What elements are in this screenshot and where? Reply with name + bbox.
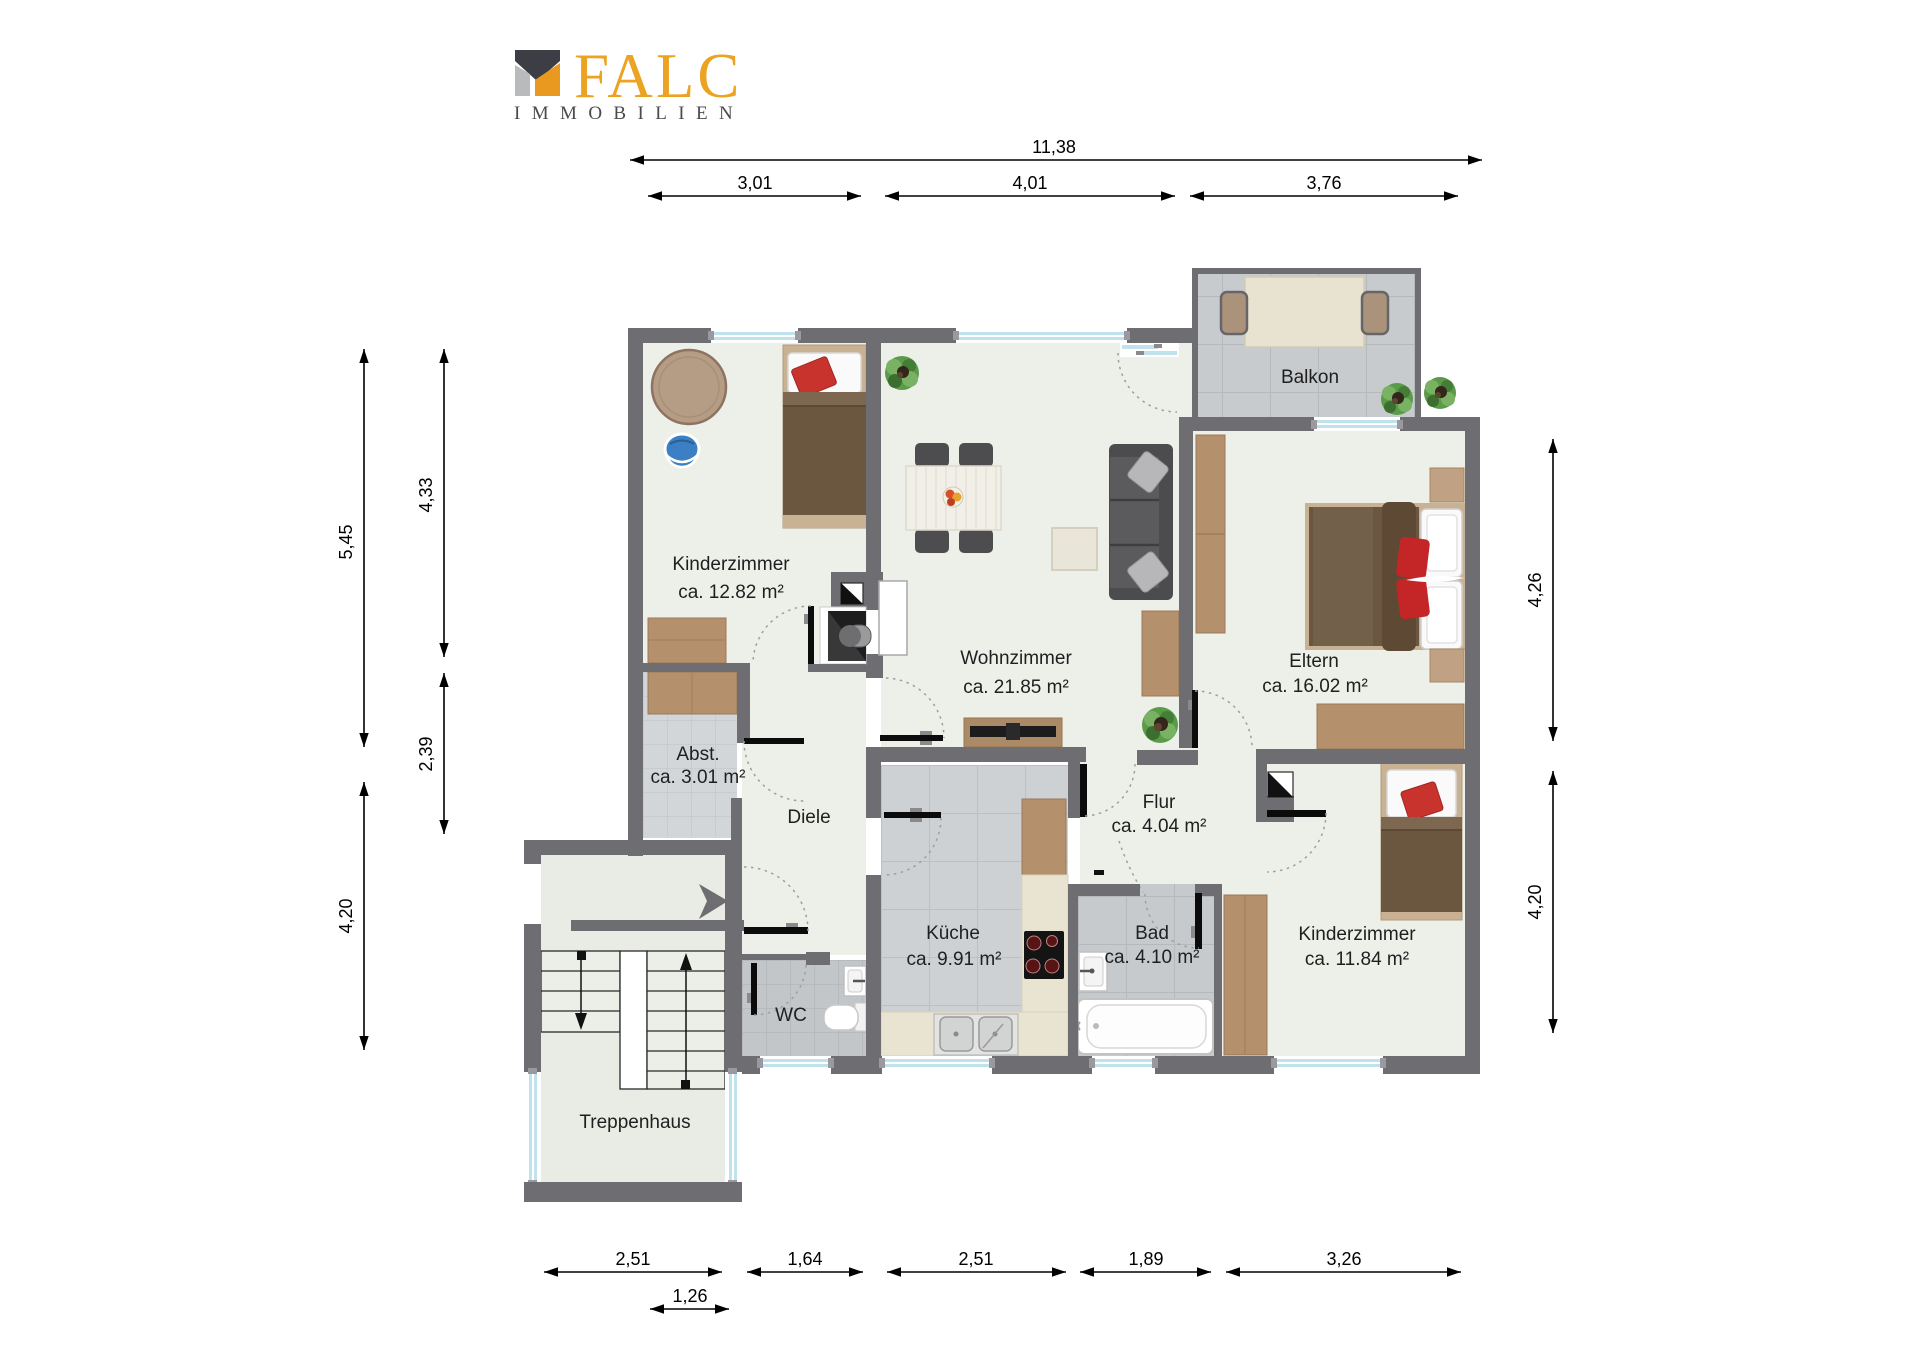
svg-text:Diele: Diele [787, 807, 830, 828]
svg-text:4,20: 4,20 [1525, 884, 1545, 919]
svg-text:FALC: FALC [574, 41, 742, 111]
svg-text:11,38: 11,38 [1032, 137, 1076, 157]
svg-text:ca. 12.82 m²: ca. 12.82 m² [678, 582, 784, 603]
svg-text:2,51: 2,51 [615, 1249, 650, 1269]
svg-text:1,26: 1,26 [672, 1286, 707, 1306]
svg-text:Kinderzimmer: Kinderzimmer [1298, 924, 1416, 945]
svg-text:ca. 16.02 m²: ca. 16.02 m² [1262, 676, 1368, 697]
svg-text:3,76: 3,76 [1306, 173, 1341, 193]
svg-text:2,51: 2,51 [958, 1249, 993, 1269]
svg-text:ca. 3.01 m²: ca. 3.01 m² [650, 767, 745, 788]
svg-text:Eltern: Eltern [1289, 651, 1339, 672]
svg-text:3,26: 3,26 [1326, 1249, 1361, 1269]
svg-text:IMMOBILIEN: IMMOBILIEN [514, 103, 744, 124]
svg-text:ca. 9.91 m²: ca. 9.91 m² [906, 949, 1001, 970]
svg-text:4,33: 4,33 [416, 477, 436, 512]
svg-text:Kinderzimmer: Kinderzimmer [672, 554, 790, 575]
svg-text:Treppenhaus: Treppenhaus [579, 1112, 690, 1133]
svg-text:1,64: 1,64 [787, 1249, 822, 1269]
svg-text:4,20: 4,20 [336, 898, 356, 933]
svg-text:Wohnzimmer: Wohnzimmer [960, 648, 1072, 669]
svg-text:ca. 11.84 m²: ca. 11.84 m² [1305, 949, 1409, 970]
svg-text:ca. 4.04 m²: ca. 4.04 m² [1111, 816, 1206, 837]
svg-text:Abst.: Abst. [676, 744, 719, 765]
svg-text:Balkon: Balkon [1281, 367, 1339, 388]
svg-text:WC: WC [775, 1005, 807, 1026]
svg-text:5,45: 5,45 [336, 524, 356, 559]
svg-text:1,89: 1,89 [1128, 1249, 1163, 1269]
svg-text:ca. 21.85 m²: ca. 21.85 m² [963, 677, 1069, 698]
svg-text:ca. 4.10 m²: ca. 4.10 m² [1104, 947, 1199, 968]
svg-text:4,01: 4,01 [1012, 173, 1047, 193]
svg-text:Bad: Bad [1135, 923, 1169, 944]
svg-text:Flur: Flur [1143, 792, 1176, 813]
svg-text:2,39: 2,39 [416, 736, 436, 771]
svg-text:Küche: Küche [926, 923, 980, 944]
svg-text:4,26: 4,26 [1525, 572, 1545, 607]
svg-text:3,01: 3,01 [737, 173, 772, 193]
